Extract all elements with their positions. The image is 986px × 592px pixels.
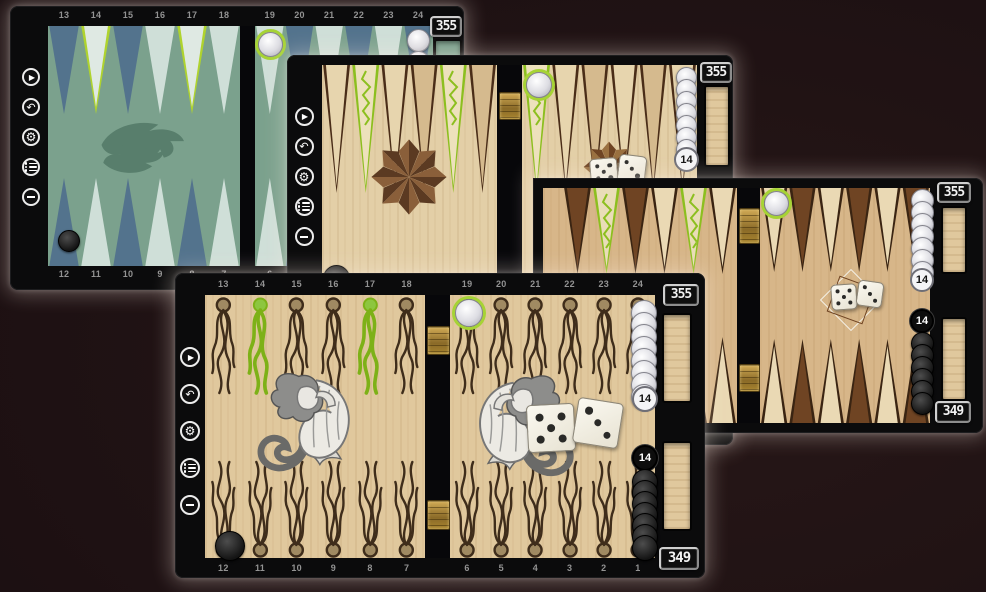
seaweed-point[interactable] xyxy=(205,297,242,397)
board-point[interactable] xyxy=(760,339,788,423)
board-left-half xyxy=(48,26,240,266)
point-number: 24 xyxy=(621,279,655,289)
brass-hinge xyxy=(427,500,450,530)
white-checker-selected[interactable] xyxy=(526,72,552,98)
white-checker-selected[interactable] xyxy=(258,32,283,57)
white-checker[interactable] xyxy=(407,29,430,52)
black-checker[interactable] xyxy=(215,531,245,561)
die-pip xyxy=(836,289,840,293)
black-checker-stack[interactable] xyxy=(632,469,658,561)
play-icon[interactable]: ▶ xyxy=(22,68,40,86)
die-pip xyxy=(868,292,873,297)
points-top-left xyxy=(563,188,737,274)
settings-icon[interactable]: ⚙ xyxy=(295,167,314,186)
board-point[interactable] xyxy=(468,65,497,193)
point-number: 5 xyxy=(484,563,518,573)
board-point[interactable] xyxy=(112,178,144,266)
board-point[interactable] xyxy=(208,178,240,266)
bear-off-tray-black[interactable] xyxy=(662,441,692,531)
bear-off-tray-white[interactable] xyxy=(662,313,692,403)
die-pip xyxy=(630,167,635,172)
point-number: 10 xyxy=(112,269,144,279)
point-number: 24 xyxy=(403,10,433,20)
white-checker-selected[interactable] xyxy=(455,299,483,327)
die-pip xyxy=(585,407,594,416)
point-number: 23 xyxy=(587,279,621,289)
point-number: 11 xyxy=(242,563,279,573)
point-numbers-top-left: 131415161718 xyxy=(48,9,240,21)
black-checker[interactable] xyxy=(58,230,80,252)
die-left[interactable] xyxy=(526,403,576,453)
board-point[interactable] xyxy=(817,339,845,423)
board-point[interactable] xyxy=(255,178,285,266)
pip-score-white: 355 xyxy=(937,182,971,203)
board-point[interactable] xyxy=(679,188,708,274)
board-point[interactable] xyxy=(650,188,679,274)
die-pip xyxy=(873,298,878,303)
point-number: 6 xyxy=(450,563,484,573)
white-off-count-badge: 14 xyxy=(632,386,658,412)
point-number: 3 xyxy=(553,563,587,573)
board-point[interactable] xyxy=(708,188,737,274)
point-number: 8 xyxy=(352,563,389,573)
compass-star-inlay xyxy=(369,137,449,217)
die-pip xyxy=(848,300,852,304)
pip-score-black: 349 xyxy=(935,401,971,423)
point-number: 21 xyxy=(518,279,552,289)
board-point[interactable] xyxy=(708,337,737,423)
point-number: 23 xyxy=(374,10,404,20)
play-icon[interactable]: ▶ xyxy=(180,347,200,367)
board-point[interactable] xyxy=(788,188,816,272)
die-pip xyxy=(594,419,603,428)
black-checker-stack[interactable] xyxy=(911,332,934,415)
center-bar xyxy=(240,26,255,266)
point-number: 13 xyxy=(205,279,242,289)
board-point[interactable] xyxy=(48,178,80,266)
brass-hinge xyxy=(739,364,760,392)
seaweed-point[interactable] xyxy=(388,297,425,397)
board-point[interactable] xyxy=(176,178,208,266)
die-pip xyxy=(535,413,543,421)
points-top-left xyxy=(48,26,240,114)
montage-stage: 131415161718 192021222324 ▶↶⚙ 355 121110… xyxy=(0,0,986,592)
point-number: 18 xyxy=(388,279,425,289)
white-checker-selected[interactable] xyxy=(764,191,789,216)
seaweed-point[interactable] xyxy=(587,297,621,397)
black-checker[interactable] xyxy=(632,535,658,561)
die-pip xyxy=(624,160,629,165)
board-point[interactable] xyxy=(80,26,112,114)
board-point[interactable] xyxy=(563,188,592,274)
die-pip xyxy=(547,424,555,432)
board-point[interactable] xyxy=(788,339,816,423)
board-point[interactable] xyxy=(551,65,580,193)
die-pip xyxy=(863,285,868,290)
mermaid-illustration-left xyxy=(247,363,362,478)
menu-icon[interactable] xyxy=(180,458,200,478)
board-point[interactable] xyxy=(176,26,208,114)
board-point[interactable] xyxy=(322,65,351,193)
pip-score-white: 355 xyxy=(430,16,462,37)
undo-icon[interactable]: ↶ xyxy=(295,137,314,156)
board-point[interactable] xyxy=(873,339,901,423)
point-numbers-top-right: 192021222324 xyxy=(255,9,433,21)
die-pip xyxy=(842,295,846,299)
point-number: 14 xyxy=(80,10,112,20)
seaweed-point[interactable] xyxy=(587,458,621,558)
seaweed-point[interactable] xyxy=(388,458,425,558)
pip-score-black: 349 xyxy=(659,547,699,570)
menu-icon[interactable] xyxy=(295,197,314,216)
point-number: 17 xyxy=(352,279,389,289)
bear-off-tray-white[interactable] xyxy=(941,206,967,274)
screenshot-mermaid-board: 131415161718 192021222324 355 ▶↶⚙ 14 14 … xyxy=(175,273,705,578)
undo-icon[interactable]: ↶ xyxy=(22,98,40,116)
white-off-count-badge: 14 xyxy=(674,147,699,172)
brass-hinge xyxy=(499,92,521,120)
point-numbers-top-right: 192021222324 xyxy=(450,277,655,290)
point-number: 1 xyxy=(621,563,655,573)
point-number: 21 xyxy=(314,10,344,20)
die-pip xyxy=(558,434,566,442)
play-icon[interactable]: ▶ xyxy=(295,107,314,126)
board-point[interactable] xyxy=(48,26,80,114)
brass-hinge xyxy=(427,326,450,355)
point-number: 22 xyxy=(553,279,587,289)
board-point[interactable] xyxy=(144,178,176,266)
point-number: 10 xyxy=(278,563,315,573)
game-sidebar: ▶↶⚙ xyxy=(293,107,315,246)
point-number: 14 xyxy=(242,279,279,289)
point-number: 9 xyxy=(315,563,352,573)
die-pip xyxy=(602,431,611,440)
board-point[interactable] xyxy=(112,26,144,114)
pip-score-white: 355 xyxy=(700,62,732,83)
black-off-count-badge: 14 xyxy=(632,445,658,471)
point-number: 13 xyxy=(48,10,80,20)
die-pip xyxy=(602,170,607,175)
point-number: 4 xyxy=(518,563,552,573)
die-pip xyxy=(536,435,544,443)
point-number: 12 xyxy=(48,269,80,279)
game-sidebar: ▶↶⚙ xyxy=(21,68,41,206)
boards-icon[interactable] xyxy=(295,227,314,246)
point-number: 9 xyxy=(144,269,176,279)
pip-score-white: 355 xyxy=(663,284,699,306)
point-number: 16 xyxy=(315,279,352,289)
board-point[interactable] xyxy=(592,188,621,274)
board-point[interactable] xyxy=(845,339,873,423)
dragon-logo xyxy=(85,110,195,176)
board-point[interactable] xyxy=(80,178,112,266)
point-number: 22 xyxy=(344,10,374,20)
settings-icon[interactable]: ⚙ xyxy=(22,128,40,146)
point-number: 12 xyxy=(205,563,242,573)
die-right[interactable] xyxy=(572,397,625,450)
point-numbers-bottom-left: 121110987 xyxy=(205,561,425,574)
black-checker[interactable] xyxy=(911,392,934,415)
bear-off-tray[interactable] xyxy=(704,85,730,167)
boards-icon[interactable] xyxy=(22,188,40,206)
die-pip xyxy=(836,301,840,305)
black-off-count-badge: 14 xyxy=(910,309,934,333)
bear-off-tray-black[interactable] xyxy=(941,317,967,401)
point-number: 19 xyxy=(255,10,285,20)
die-pip xyxy=(847,289,851,293)
point-numbers-bottom-right: 654321 xyxy=(450,561,655,574)
points-bottom-right xyxy=(760,339,930,423)
point-number: 7 xyxy=(388,563,425,573)
die-pip xyxy=(557,412,565,420)
die-right[interactable] xyxy=(855,279,884,308)
die-pip xyxy=(595,164,600,169)
point-numbers-top-left: 131415161718 xyxy=(205,277,425,290)
die-left[interactable] xyxy=(830,283,858,311)
point-number: 17 xyxy=(176,10,208,20)
undo-icon[interactable]: ↶ xyxy=(180,384,200,404)
game-sidebar: ▶↶⚙ xyxy=(179,347,201,515)
board-point[interactable] xyxy=(845,188,873,272)
menu-icon[interactable] xyxy=(22,158,40,176)
white-off-count-badge: 14 xyxy=(910,268,934,292)
brass-hinge xyxy=(739,208,760,244)
point-number: 15 xyxy=(278,279,315,289)
settings-icon[interactable]: ⚙ xyxy=(180,421,200,441)
die-pip xyxy=(607,163,612,168)
points-bottom-left xyxy=(48,178,240,266)
board-point[interactable] xyxy=(873,188,901,272)
point-number: 2 xyxy=(587,563,621,573)
point-number: 20 xyxy=(484,279,518,289)
point-number: 11 xyxy=(80,269,112,279)
boards-icon[interactable] xyxy=(180,495,200,515)
board-point[interactable] xyxy=(817,188,845,272)
point-number: 16 xyxy=(144,10,176,20)
board-point[interactable] xyxy=(144,26,176,114)
board-point[interactable] xyxy=(621,188,650,274)
board-point[interactable] xyxy=(208,26,240,114)
point-number: 19 xyxy=(450,279,484,289)
point-number: 15 xyxy=(112,10,144,20)
point-number: 20 xyxy=(285,10,315,20)
point-number: 18 xyxy=(208,10,240,20)
